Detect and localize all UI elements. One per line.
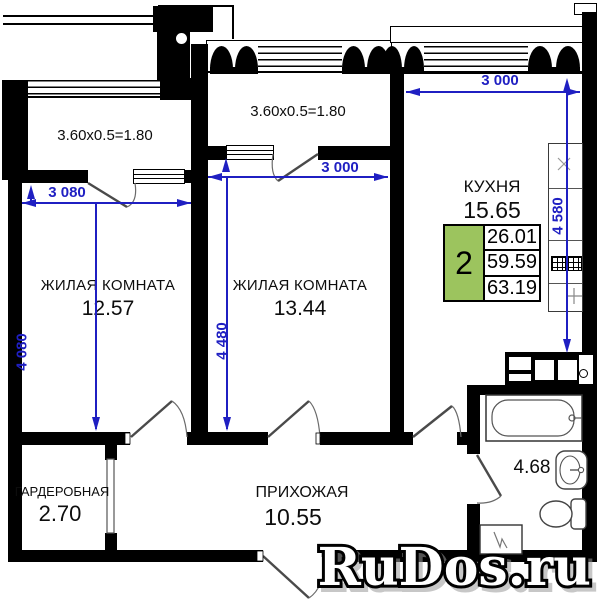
rooms-count-cell: 2 [445, 226, 485, 300]
living1-door-leaf [131, 401, 172, 437]
apartment-area-value: 59.59 [485, 251, 539, 276]
living2-area: 13.44 [212, 298, 388, 319]
dim-arrow-right [177, 199, 191, 207]
kitchen-label: КУХНЯ [432, 178, 552, 195]
dim-arrow-up [563, 78, 571, 92]
watermark: RuDos.ru [318, 537, 591, 598]
toilet-symbol [540, 499, 586, 529]
dim-kitchen-depth: 4 580 [551, 197, 566, 235]
total-area-value: 63.19 [485, 277, 539, 300]
watermark-layer: RuDos.ru RuDos.ru [255, 530, 600, 598]
dim-arrow-left [208, 173, 222, 181]
sink-cross-mark [566, 288, 582, 304]
wardrobe-area: 2.70 [14, 503, 106, 525]
dim-line [208, 176, 388, 178]
dim-line [406, 91, 580, 93]
balcony1-window-formula: 3.60x0.5=1.80 [35, 128, 175, 143]
counter-x-mark [558, 158, 570, 170]
dim-arrow-down [92, 417, 100, 431]
dim-line [95, 203, 97, 429]
living1-area: 12.57 [18, 298, 198, 319]
dim-arrow-down [223, 417, 231, 431]
dim-arrow-down [563, 339, 571, 353]
dim-line [566, 92, 568, 340]
living2-door-leaf [268, 401, 309, 437]
apartment-spec-table: 2 26.01 59.59 63.19 [443, 224, 541, 302]
kitchen-door-leaf [413, 406, 452, 437]
dim-living2-width: 3 000 [305, 160, 375, 175]
dim-living1-depth: 4 080 [15, 333, 30, 371]
dim-living1-width: 3 080 [32, 185, 102, 200]
dim-line [226, 177, 228, 429]
dim-arrow-right [374, 173, 388, 181]
floor-plan: 3.60x0.5=1.80 3.60x0.5=1.80 ЖИЛАЯ КОМНАТ… [0, 0, 600, 600]
dim-line [22, 202, 191, 204]
bathtub-symbol [486, 395, 582, 441]
dim-line [30, 197, 32, 203]
bathroom-area: 4.68 [492, 458, 572, 477]
hallway-area: 10.55 [213, 506, 373, 529]
wardrobe-label: ГАРДЕРОБНАЯ [14, 485, 110, 498]
dim-arrow-up [222, 158, 230, 172]
living2-label: ЖИЛАЯ КОМНАТА [212, 278, 388, 293]
kitchen-area: 15.65 [432, 199, 552, 222]
dim-kitchen-width: 3 000 [465, 73, 535, 88]
living1-label: ЖИЛАЯ КОМНАТА [18, 278, 198, 293]
balcony2-window-formula: 3.60x0.5=1.80 [228, 104, 368, 119]
living-area-value: 26.01 [485, 226, 539, 251]
hallway-label: ПРИХОЖАЯ [222, 485, 382, 501]
dim-arrow-left [22, 199, 36, 207]
dim-arrow-left [406, 88, 420, 96]
